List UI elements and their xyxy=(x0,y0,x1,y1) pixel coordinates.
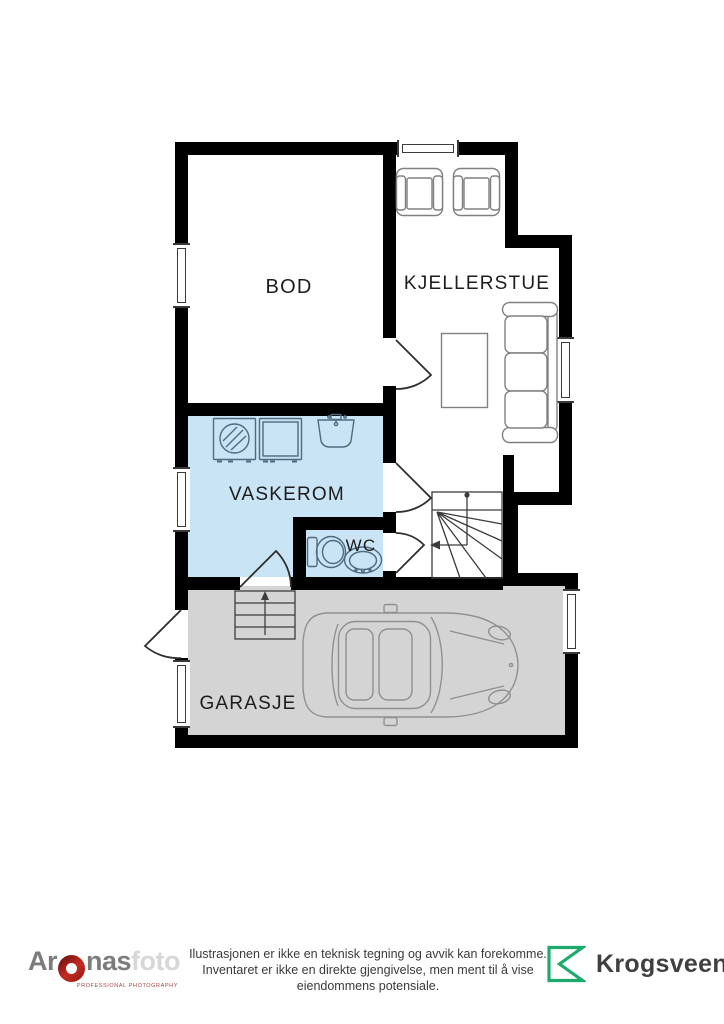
room-label-wc: WC xyxy=(346,536,377,556)
window-symbol xyxy=(563,589,580,654)
wall xyxy=(175,142,518,155)
wall xyxy=(383,416,396,463)
disclaimer-text: Ilustrasjonen er ikke en teknisk tegning… xyxy=(183,946,553,994)
room-label-bod: BOD xyxy=(266,276,313,299)
aronasfoto-logo: Arnasfoto PROFESSIONAL PHOTOGRAPHY xyxy=(28,948,180,990)
krogsveen-logo: Krogsveen xyxy=(546,944,724,984)
aronasfoto-wordmark: Arnasfoto xyxy=(28,948,180,982)
wall xyxy=(503,455,514,495)
aronas-o-icon xyxy=(58,955,85,982)
window-symbol xyxy=(397,140,459,157)
window-symbol xyxy=(173,467,190,532)
floor-plan-page: BOD KJELLERSTUE VASKEROM WC GARASJE Arna… xyxy=(0,0,724,1024)
disclaimer-line: Ilustrasjonen er ikke en teknisk tegning… xyxy=(183,946,553,962)
aronas-tagline: PROFESSIONAL PHOTOGRAPHY xyxy=(28,984,180,990)
wall xyxy=(293,517,390,530)
armchair-icon xyxy=(397,169,443,216)
window-symbol xyxy=(173,660,190,728)
sofa-icon xyxy=(503,303,558,443)
wall xyxy=(175,735,578,748)
foto-text: foto xyxy=(131,946,180,976)
window-symbol xyxy=(557,337,574,403)
disclaimer-line: Inventaret er ikke en direkte gjengivels… xyxy=(183,962,553,978)
room-label-garasje: GARASJE xyxy=(199,693,296,715)
krogsveen-name: Krogsveen xyxy=(596,950,724,979)
wall xyxy=(175,403,396,416)
aronas-text: nas xyxy=(86,946,131,976)
wall xyxy=(291,577,503,590)
room-label-vaskerom: VASKEROM xyxy=(229,484,345,506)
wall xyxy=(383,142,396,338)
wall xyxy=(175,577,240,590)
aronas-text: Ar xyxy=(28,946,57,976)
armchair-icon xyxy=(454,169,500,216)
wall xyxy=(505,142,518,248)
disclaimer-line: eiendommens potensiale. xyxy=(183,978,553,994)
wall xyxy=(503,492,518,586)
window-symbol xyxy=(173,243,190,308)
room-label-kjellerstue: KJELLERSTUE xyxy=(404,273,550,295)
stairs-icon xyxy=(430,492,502,578)
coffee-table-icon xyxy=(442,334,488,408)
door-opening xyxy=(175,610,188,658)
